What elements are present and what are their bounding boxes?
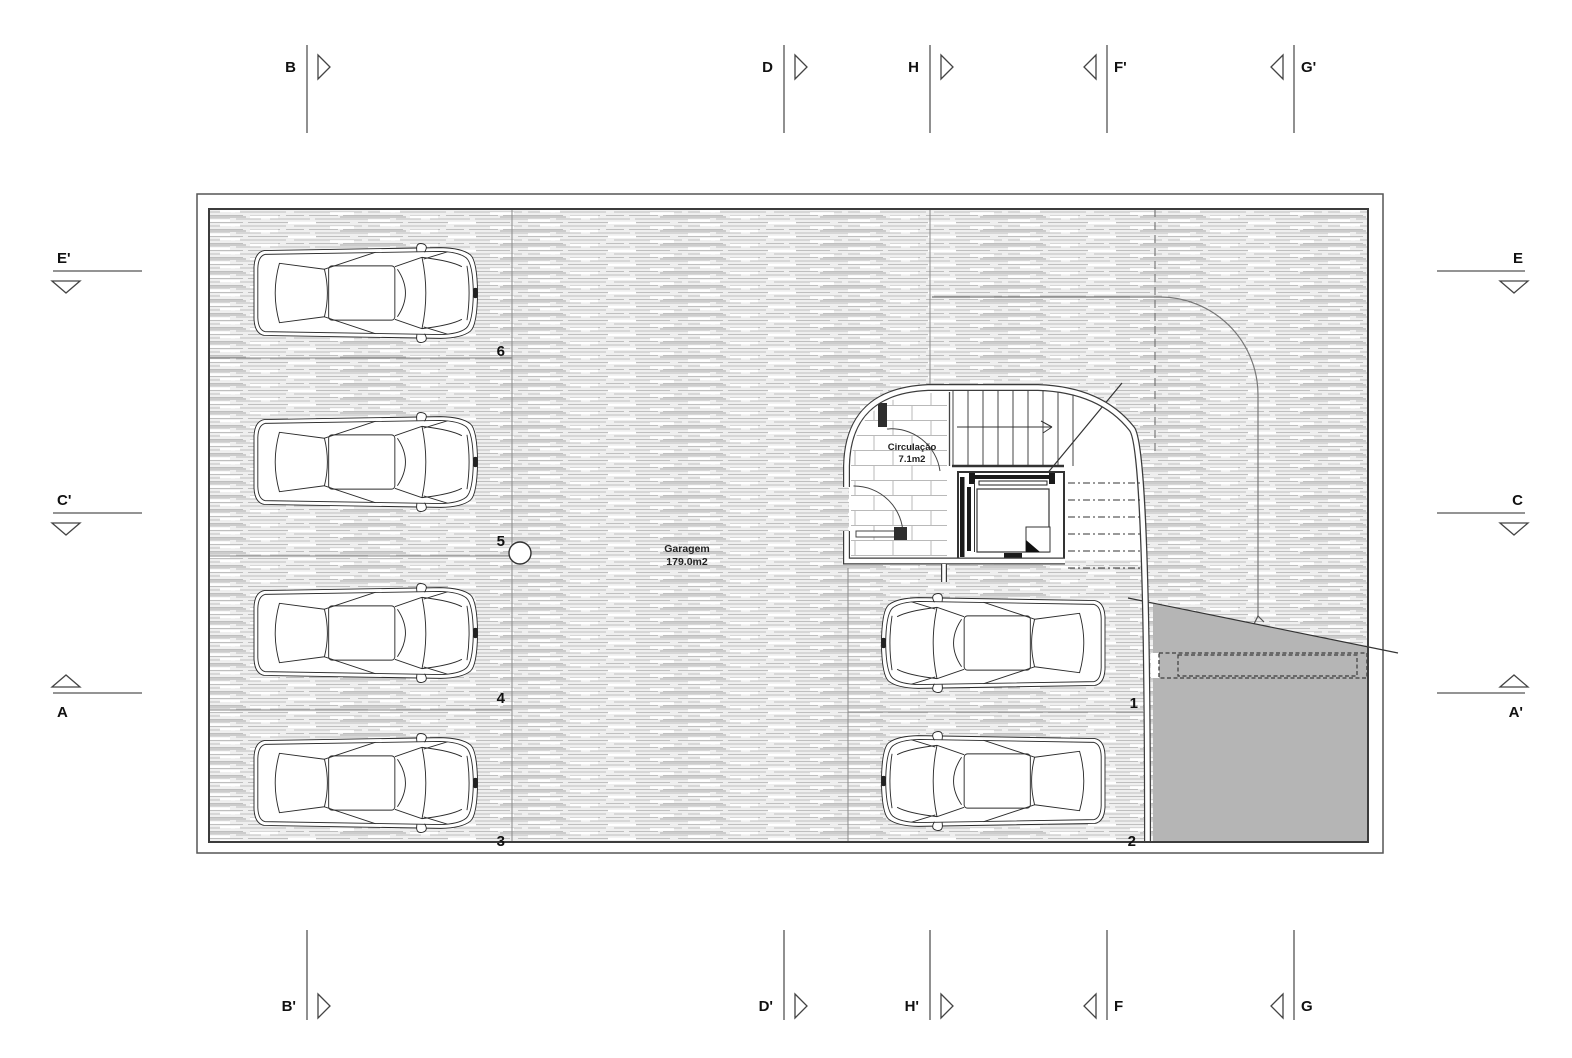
section-arrow-h-prime [941, 994, 953, 1018]
section-arrow-g [1271, 994, 1283, 1018]
section-arrow-d [795, 55, 807, 79]
ramp-wall-notch [1151, 653, 1159, 678]
grid-label-c: C [1512, 492, 1523, 509]
elevator-rail-1 [960, 477, 965, 557]
garage-area-label: 179.0m2 [666, 556, 708, 568]
section-arrow-g-prime [1271, 55, 1283, 79]
grid-label-g-prime: G' [1301, 59, 1316, 76]
bay-number-3: 3 [497, 833, 505, 850]
bay-number-4: 4 [497, 690, 506, 707]
circulation-name-label: Circulação [888, 442, 937, 453]
grid-label-e-prime: E' [57, 250, 71, 267]
grid-label-f-prime: F' [1114, 59, 1127, 76]
section-arrow-a-prime [1500, 675, 1528, 687]
grid-label-h: H [908, 59, 919, 76]
elevator-rail-2 [967, 487, 971, 551]
section-arrow-a [52, 675, 80, 687]
bay-number-2: 2 [1128, 833, 1136, 850]
section-arrow-c [1500, 523, 1528, 535]
floor-plan-page: Garagem 179.0m2 Circulação 7.1m2 6 5 4 3… [0, 0, 1572, 1058]
section-arrow-d-prime [795, 994, 807, 1018]
grid-label-b-prime: B' [282, 998, 296, 1015]
grid-label-e: E [1513, 250, 1523, 267]
car-bay-3 [254, 734, 478, 833]
section-arrow-b [318, 55, 330, 79]
grid-label-a: A [57, 704, 68, 721]
grid-label-b: B [285, 59, 296, 76]
column-circle [509, 542, 531, 564]
section-arrow-f [1084, 994, 1096, 1018]
section-arrow-h [941, 55, 953, 79]
grid-label-d: D [762, 59, 773, 76]
door-leaf-top [878, 403, 887, 427]
elevator-door-bracket-right [1049, 473, 1055, 484]
elevator [958, 472, 1064, 560]
section-arrow-b-prime [318, 994, 330, 1018]
door-jamb-block [894, 527, 907, 540]
section-arrow-e [1500, 281, 1528, 293]
garage-name-label: Garagem [664, 543, 710, 555]
bay-number-6: 6 [497, 343, 505, 360]
elevator-sill [1004, 553, 1022, 558]
door-leaf-bottom [856, 531, 896, 537]
section-arrow-f-prime [1084, 55, 1096, 79]
car-bay-1 [881, 594, 1105, 693]
grid-label-a-prime: A' [1509, 704, 1523, 721]
grid-label-c-prime: C' [57, 492, 71, 509]
bay-number-5: 5 [497, 533, 505, 550]
section-arrow-c-prime [52, 523, 80, 535]
circulation-area-label: 7.1m2 [899, 454, 926, 465]
grid-label-g: G [1301, 998, 1313, 1015]
grid-label-d-prime: D' [759, 998, 773, 1015]
floor-plan-drawing: Garagem 179.0m2 Circulação 7.1m2 6 5 4 3… [0, 0, 1572, 1058]
bay-number-1: 1 [1130, 695, 1138, 712]
grid-label-h-prime: H' [905, 998, 919, 1015]
car-bay-5 [254, 413, 478, 512]
car-bay-2 [881, 732, 1105, 831]
grid-label-f: F [1114, 998, 1123, 1015]
car-bay-6 [254, 244, 478, 343]
elevator-door-bar [974, 475, 1052, 479]
section-arrow-e-prime [52, 281, 80, 293]
car-bay-4 [254, 584, 478, 683]
